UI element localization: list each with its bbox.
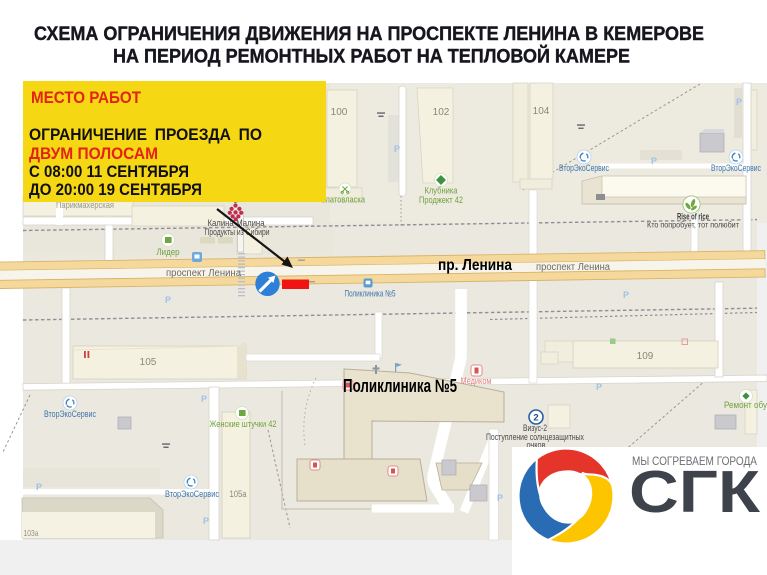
svg-text:Златовласка: Златовласка xyxy=(321,195,366,206)
svg-text:P: P xyxy=(165,295,171,305)
svg-text:P: P xyxy=(596,382,602,392)
svg-text:ОГРАНИЧЕНИЕ ПРОЕЗДА ПО: ОГРАНИЧЕНИЕ ПРОЕЗДА ПО xyxy=(29,125,262,144)
svg-text:Кто попробует, тот полюбит: Кто попробует, тот полюбит xyxy=(647,220,739,230)
svg-text:пр. Ленина: пр. Ленина xyxy=(438,257,512,274)
svg-text:Ремонт обу: Ремонт обу xyxy=(724,400,767,411)
svg-text:МЕСТО РАБОТ: МЕСТО РАБОТ xyxy=(31,88,142,107)
svg-text:100: 100 xyxy=(331,107,348,118)
svg-text:ВторЭкоСервис: ВторЭкоСервис xyxy=(44,409,96,420)
svg-text:ДО 20:00 19 СЕНТЯБРЯ: ДО 20:00 19 СЕНТЯБРЯ xyxy=(29,180,202,199)
svg-text:С 08:00 11 СЕНТЯБРЯ: С 08:00 11 СЕНТЯБРЯ xyxy=(29,162,189,181)
svg-text:ВторЭкоСервис: ВторЭкоСервис xyxy=(559,163,609,174)
svg-text:103а: 103а xyxy=(24,528,39,538)
svg-text:P: P xyxy=(36,482,42,492)
svg-text:ДВУМ ПОЛОСАМ: ДВУМ ПОЛОСАМ xyxy=(29,144,158,163)
svg-text:109: 109 xyxy=(637,351,654,362)
svg-text:Поликлиника №5: Поликлиника №5 xyxy=(345,289,396,300)
svg-text:104: 104 xyxy=(533,106,550,117)
svg-text:Женские штучки 42: Женские штучки 42 xyxy=(210,419,277,430)
svg-text:НА ПЕРИОД РЕМОНТНЫХ РАБОТ НА Т: НА ПЕРИОД РЕМОНТНЫХ РАБОТ НА ТЕПЛОВОЙ КА… xyxy=(113,44,630,68)
svg-text:P: P xyxy=(497,493,503,503)
svg-text:P: P xyxy=(394,144,400,154)
svg-text:проспект Ленина: проспект Ленина xyxy=(166,268,241,279)
svg-text:P: P xyxy=(201,394,207,404)
svg-text:Продукты из Сибири: Продукты из Сибири xyxy=(205,227,270,238)
svg-text:102: 102 xyxy=(433,107,450,118)
svg-text:105: 105 xyxy=(140,357,157,368)
svg-text:проспект Ленина: проспект Ленина xyxy=(536,262,610,273)
svg-text:Лидер: Лидер xyxy=(157,247,180,258)
svg-text:ВторЭкоСервис: ВторЭкоСервис xyxy=(165,489,219,500)
svg-text:P: P xyxy=(651,156,657,166)
svg-text:ВторЭкоСервис: ВторЭкоСервис xyxy=(711,163,761,174)
svg-text:P: P xyxy=(203,516,209,526)
svg-text:СГК: СГК xyxy=(629,459,761,525)
svg-text:СХЕМА ОГРАНИЧЕНИЯ ДВИЖЕНИЯ НА: СХЕМА ОГРАНИЧЕНИЯ ДВИЖЕНИЯ НА ПРОСПЕКТЕ … xyxy=(34,23,704,45)
svg-text:Медиком: Медиком xyxy=(461,376,492,387)
svg-text:P: P xyxy=(736,97,742,107)
svg-text:P: P xyxy=(623,290,629,300)
svg-text:Поликлиника №5: Поликлиника №5 xyxy=(343,376,457,396)
svg-text:2: 2 xyxy=(533,413,538,424)
svg-text:Проджект 42: Проджект 42 xyxy=(419,195,463,206)
svg-text:105а: 105а xyxy=(230,489,248,500)
